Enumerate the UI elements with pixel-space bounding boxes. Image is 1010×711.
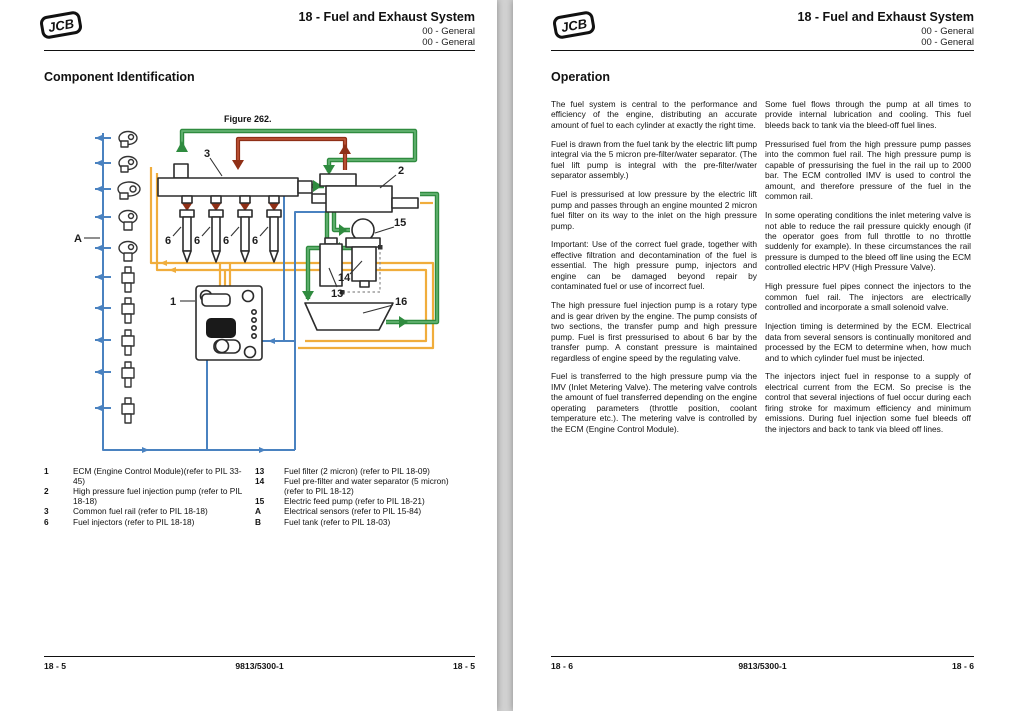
sensor-icon	[122, 267, 134, 292]
label-15: 15	[394, 217, 406, 229]
section-heading: Component Identification	[44, 70, 195, 84]
paragraph: Injection timing is determined by the EC…	[765, 321, 971, 363]
electrical-sensors	[118, 132, 140, 424]
paragraph: Fuel is pressurised at low pressure by t…	[551, 189, 757, 231]
legend-item-num: B	[255, 517, 284, 527]
legend-item: BFuel tank (refer to PIL 18-03)	[255, 517, 469, 527]
page-subtitle: 00 - General	[921, 37, 974, 48]
paragraph: In some operating conditions the inlet m…	[765, 210, 971, 273]
fuel-injector	[209, 210, 223, 262]
footer-rule	[551, 656, 974, 657]
high-pressure-pump	[312, 174, 418, 212]
legend-item-num: 15	[255, 496, 284, 506]
paragraph: The fuel system is central to the perfor…	[551, 99, 757, 130]
fuel-injector	[238, 210, 252, 262]
legend-item-num: 6	[44, 517, 73, 527]
label-2: 2	[398, 165, 404, 177]
legend-item: 3Common fuel rail (refer to PIL 18-18)	[44, 506, 250, 516]
legend-item-num: 2	[44, 486, 73, 506]
legend-item: 13Fuel filter (2 micron) (refer to PIL 1…	[255, 466, 469, 476]
legend-item-text: Electrical sensors (refer to PIL 15-84)	[284, 506, 469, 516]
text-column-1: The fuel system is central to the perfor…	[551, 99, 757, 443]
label-6: 6	[165, 235, 171, 247]
label-14: 14	[338, 272, 351, 284]
paragraph: Some fuel flows through the pump at all …	[765, 99, 971, 130]
footer-rule	[44, 656, 475, 657]
manual-page-left: JCB 18 - Fuel and Exhaust System 00 - Ge…	[0, 0, 497, 711]
page-title: 18 - Fuel and Exhaust System	[798, 10, 974, 24]
legend-item: 1ECM (Engine Control Module)(refer to PI…	[44, 466, 250, 486]
legend-item-text: Electric feed pump (refer to PIL 18-21)	[284, 496, 469, 506]
page-subtitle: 00 - General	[422, 26, 475, 37]
legend-item-text: Fuel pre-filter and water separator (5 m…	[284, 476, 469, 496]
section-heading: Operation	[551, 70, 610, 84]
paragraph: The injectors inject fuel in response to…	[765, 371, 971, 434]
fuel-injector	[180, 210, 194, 262]
legend-item-text: ECM (Engine Control Module)(refer to PIL…	[73, 466, 250, 486]
legend-item-num: 3	[44, 506, 73, 516]
header-rule	[551, 50, 974, 51]
label-1: 1	[170, 296, 176, 308]
legend-item-text: Common fuel rail (refer to PIL 18-18)	[73, 506, 250, 516]
legend-item: 14Fuel pre-filter and water separator (5…	[255, 476, 469, 496]
manual-page-right: JCB 18 - Fuel and Exhaust System 00 - Ge…	[513, 0, 1010, 711]
page-title: 18 - Fuel and Exhaust System	[299, 10, 475, 24]
sensor-icon	[119, 132, 137, 148]
paragraph: Important: Use of the correct fuel grade…	[551, 239, 757, 291]
sensor-icon	[122, 398, 134, 423]
page-subtitle: 00 - General	[422, 37, 475, 48]
legend-item: 2High pressure fuel injection pump (refe…	[44, 486, 250, 506]
legend-item-num: 1	[44, 466, 73, 486]
manual-spread: { "page_left": { "header": {"logo":"JCB"…	[0, 0, 1010, 711]
legend-item-num: A	[255, 506, 284, 516]
fuel-system-diagram: A 1 2 3 6 6 6 6 13 14 15 16	[60, 125, 452, 465]
fuel-injector	[267, 210, 281, 262]
footer-doc-number: 9813/5300-1	[551, 661, 974, 671]
sensor-icon	[122, 330, 134, 355]
electric-feed-pump	[346, 219, 380, 247]
label-13: 13	[331, 288, 343, 300]
legend-item: 15Electric feed pump (refer to PIL 18-21…	[255, 496, 469, 506]
text-column-2: Some fuel flows through the pump at all …	[765, 99, 971, 443]
common-rail	[158, 164, 312, 203]
header-rule	[44, 50, 475, 51]
paragraph: Fuel is drawn from the fuel tank by the …	[551, 139, 757, 181]
page-footer: 18 - 5 18 - 5 9813/5300-1	[44, 661, 475, 671]
legend-column-1: 1ECM (Engine Control Module)(refer to PI…	[44, 466, 250, 527]
legend-column-2: 13Fuel filter (2 micron) (refer to PIL 1…	[255, 466, 469, 527]
pre-filter	[352, 247, 376, 287]
paragraph: Pressurised fuel from the high pressure …	[765, 139, 971, 202]
label-a: A	[74, 233, 82, 245]
legend-item-text: Fuel injectors (refer to PIL 18-18)	[73, 517, 250, 527]
label-6: 6	[252, 235, 258, 247]
fuel-tank	[305, 303, 393, 330]
jcb-logo: JCB	[38, 8, 84, 47]
sensor-icon	[122, 362, 134, 387]
jcb-logo: JCB	[551, 8, 597, 47]
legend-item: AElectrical sensors (refer to PIL 15-84)	[255, 506, 469, 516]
paragraph: High pressure fuel pipes connect the inj…	[765, 281, 971, 312]
legend-item-text: High pressure fuel injection pump (refer…	[73, 486, 250, 506]
sensor-icon	[118, 182, 140, 199]
figure-caption: Figure 262.	[224, 114, 272, 124]
label-16: 16	[395, 296, 407, 308]
paragraph: Fuel is transferred to the high pressure…	[551, 371, 757, 434]
label-6: 6	[223, 235, 229, 247]
sensor-icon	[119, 211, 137, 231]
paragraph: The high pressure fuel injection pump is…	[551, 300, 757, 363]
label-6: 6	[194, 235, 200, 247]
legend-item-num: 14	[255, 476, 284, 496]
legend-item-text: Fuel filter (2 micron) (refer to PIL 18-…	[284, 466, 469, 476]
label-3: 3	[204, 148, 210, 160]
sensor-icon	[122, 298, 134, 323]
legend-item: 6Fuel injectors (refer to PIL 18-18)	[44, 517, 250, 527]
page-subtitle: 00 - General	[921, 26, 974, 37]
footer-doc-number: 9813/5300-1	[44, 661, 475, 671]
sensor-icon	[119, 242, 137, 262]
legend-item-text: Fuel tank (refer to PIL 18-03)	[284, 517, 469, 527]
ecm-module	[196, 286, 262, 360]
sensor-icon	[119, 157, 137, 173]
page-footer: 18 - 6 18 - 6 9813/5300-1	[551, 661, 974, 671]
legend-item-num: 13	[255, 466, 284, 476]
